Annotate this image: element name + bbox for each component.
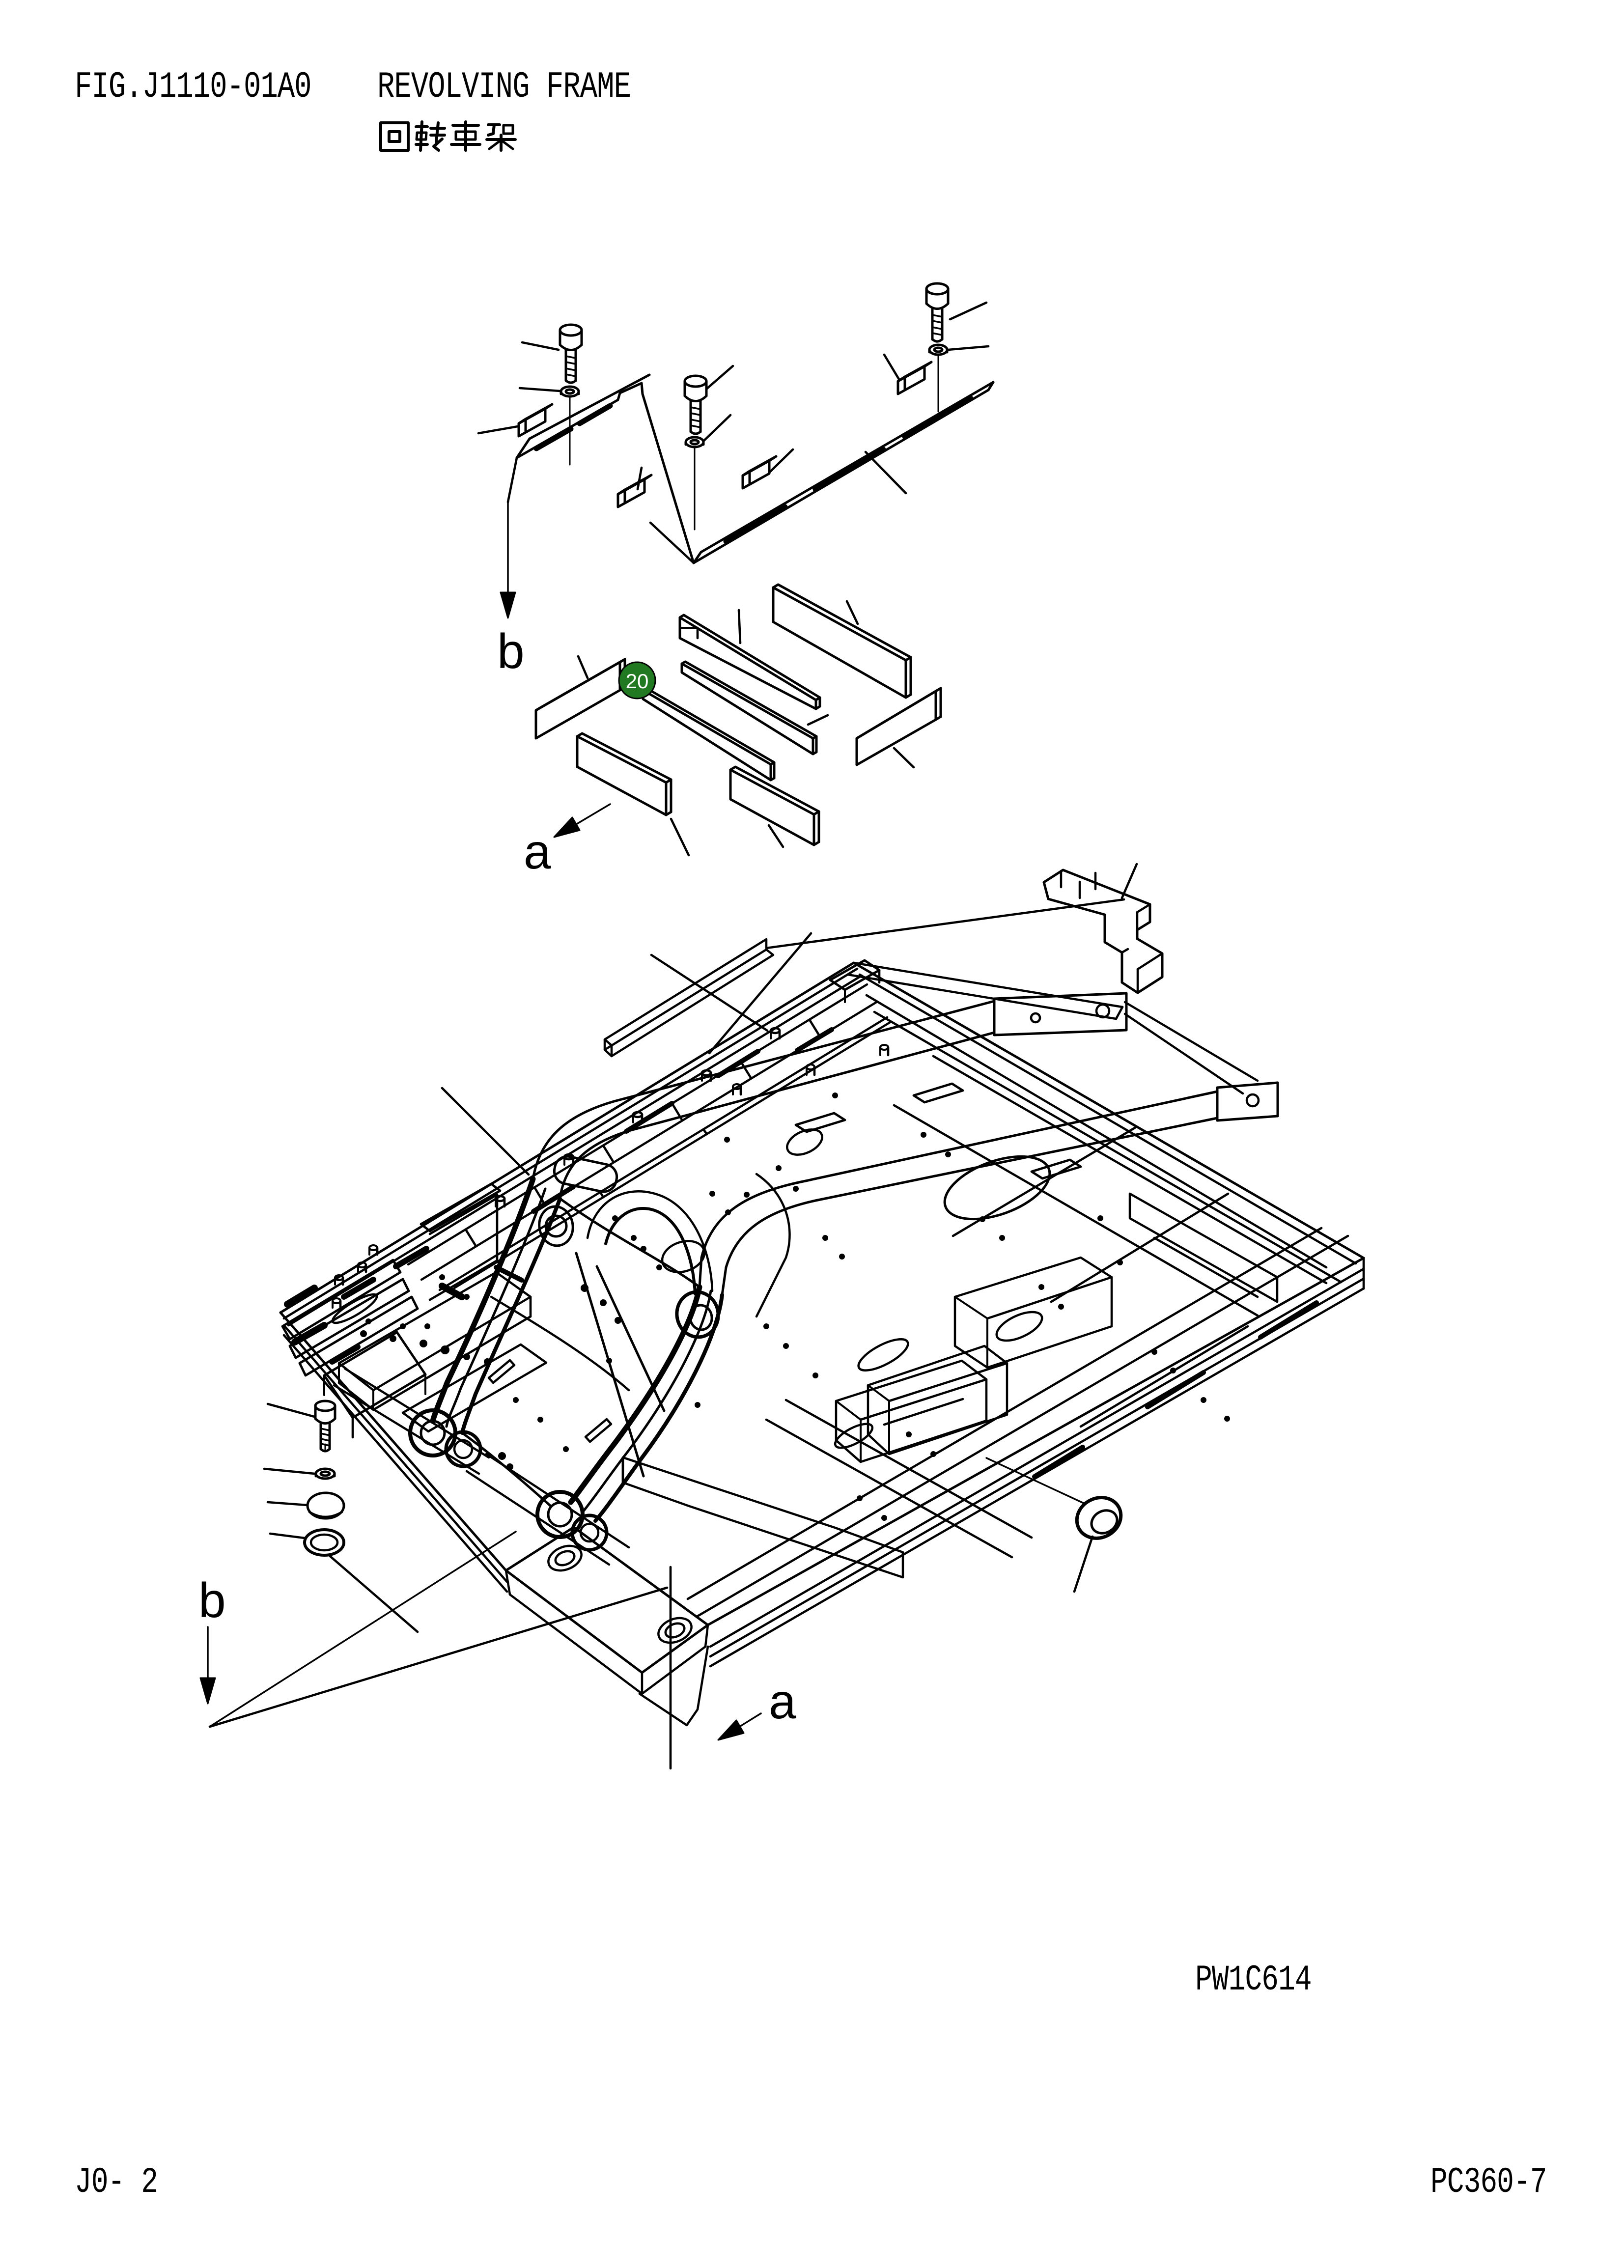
svg-text:a: a bbox=[524, 824, 551, 879]
svg-text:REVOLVING FRAME: REVOLVING FRAME bbox=[377, 67, 631, 109]
svg-text:FIG.J1110-01A0: FIG.J1110-01A0 bbox=[75, 67, 311, 109]
svg-text:PC360-7: PC360-7 bbox=[1430, 2162, 1547, 2203]
svg-text:20: 20 bbox=[626, 670, 649, 693]
svg-text:b: b bbox=[497, 624, 525, 679]
svg-text:PW1C614: PW1C614 bbox=[1195, 1960, 1312, 2000]
svg-text:b: b bbox=[198, 1573, 226, 1628]
svg-text:J0- 2: J0- 2 bbox=[75, 2162, 158, 2203]
svg-text:a: a bbox=[769, 1674, 796, 1729]
